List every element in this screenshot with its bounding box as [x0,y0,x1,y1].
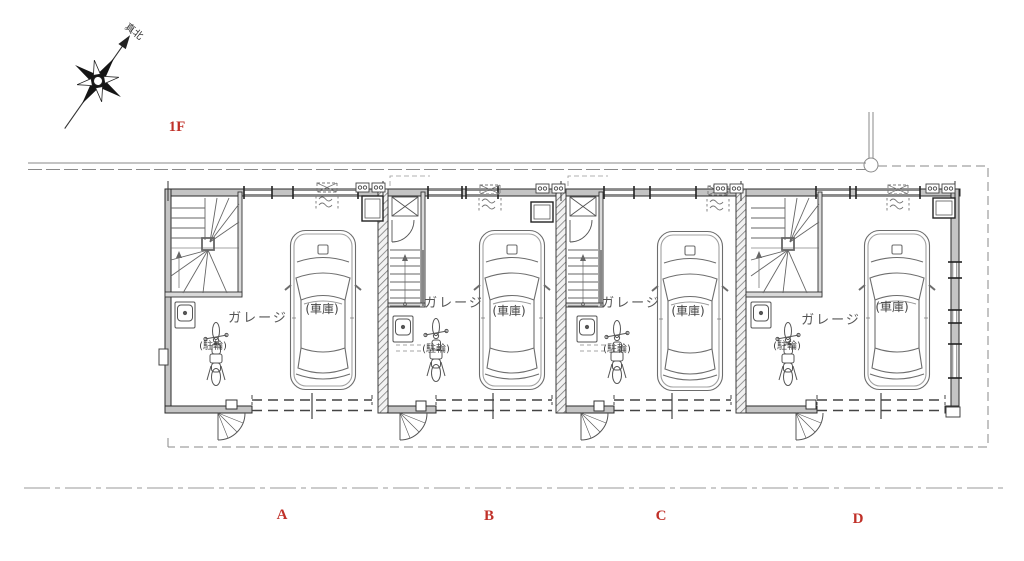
stair-straight [390,250,423,306]
utility-pole [864,112,878,172]
garage-label: ガレージ [601,296,661,311]
entrance-doors [218,400,823,440]
sink [577,316,597,342]
entry-closet [392,197,418,242]
party-wall [378,189,388,413]
party-wall [556,189,566,413]
party-wall [736,189,746,413]
door-swing [581,413,608,440]
bike-space-label: (駐輪) [199,339,227,352]
entry-door-arc [570,220,592,242]
pipe-shaft-box [933,198,955,218]
garage-label: ガレージ [228,311,288,326]
garage-label: ガレージ [801,313,861,328]
unit-label-a: A [277,507,288,523]
building-walls [165,181,960,413]
car-space-label: (車庫) [305,302,338,316]
pipe-shaft-box [362,196,383,221]
bike-space-label: (駐輪) [773,339,801,352]
floor-label: 1F [169,119,186,135]
entry-door-arc [392,220,414,242]
unit-label-d: D [853,511,864,527]
garage-label: ガレージ [424,296,484,311]
sink [751,302,771,328]
unit-a: ガレージ (車庫) (駐輪) [171,183,385,390]
door-swing [796,413,823,440]
unit-b: ガレージ (車庫) (駐輪) [390,176,565,390]
unit-label-b: B [484,508,494,524]
door-swing [218,413,245,440]
floorplan-page: 真北 1F [0,0,1024,561]
bike-space-label: (駐輪) [422,342,450,355]
door-swing [400,413,427,440]
entry-closet [570,197,596,242]
stair-winder [751,198,819,293]
unit-label-c: C [656,508,667,524]
bike-space-label: (駐輪) [603,342,631,355]
sink [175,302,195,328]
car-space-label: (車庫) [492,304,525,318]
pipe-shaft-box [531,202,553,222]
unit-d: ガレージ (車庫) (駐輪) [751,184,955,390]
unit-c: ガレージ (車庫) (駐輪) [568,176,743,391]
car-space-label: (車庫) [671,304,704,318]
unit-letter-labels: A B C D [277,507,864,527]
stair-winder [171,198,239,293]
sink [393,316,413,342]
motorcycle [776,323,800,386]
stair-straight [568,250,601,306]
floorplan-canvas: 真北 1F [0,0,1024,561]
left-wall-box [159,349,168,365]
motorcycle [204,323,228,386]
car-space-label: (車庫) [875,300,908,314]
interior-walls [165,192,822,307]
